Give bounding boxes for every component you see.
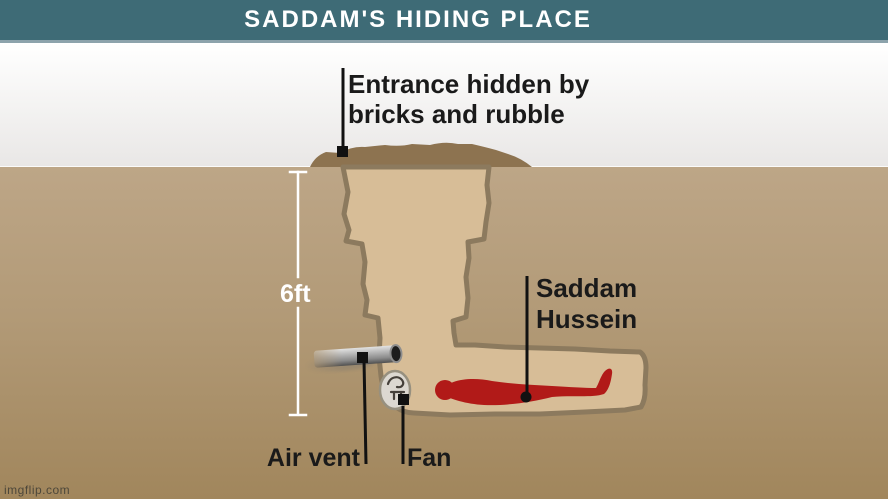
hiding-place-infographic: SADDAM'S HIDING PLACE bbox=[0, 0, 888, 499]
fan-label: Fan bbox=[407, 444, 451, 473]
person-label: Saddam Hussein bbox=[536, 273, 637, 335]
person-marker bbox=[521, 392, 532, 403]
entrance-marker bbox=[337, 146, 348, 157]
depth-label: 6ft bbox=[280, 280, 311, 309]
air-vent-marker bbox=[357, 352, 368, 363]
fan-marker bbox=[398, 394, 409, 405]
pipe-opening bbox=[390, 345, 402, 363]
person-label-line1: Saddam bbox=[536, 273, 637, 304]
watermark: imgflip.com bbox=[4, 483, 70, 497]
entrance-label-line2: bricks and rubble bbox=[348, 99, 589, 129]
air-vent-label: Air vent bbox=[258, 444, 360, 473]
person-label-line2: Hussein bbox=[536, 304, 637, 335]
entrance-label: Entrance hidden by bricks and rubble bbox=[348, 69, 589, 129]
entrance-label-line1: Entrance hidden by bbox=[348, 69, 589, 99]
air-vent-pointer-line bbox=[364, 360, 366, 464]
